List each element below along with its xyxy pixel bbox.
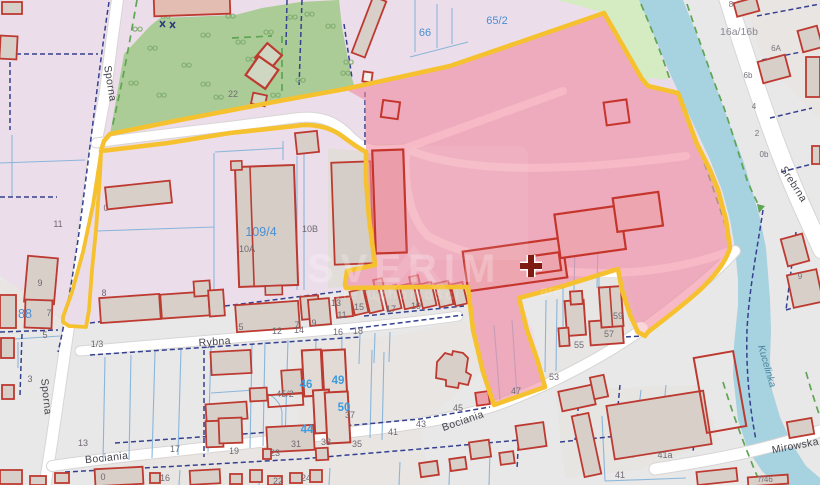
svg-text:6A: 6A	[771, 44, 781, 53]
svg-text:57: 57	[604, 329, 614, 339]
svg-text:31: 31	[291, 439, 301, 449]
svg-text:Nieruchomości: Nieruchomości	[330, 286, 462, 302]
svg-text:16: 16	[333, 327, 343, 337]
svg-text:are: are	[540, 283, 562, 300]
svg-text:33: 33	[321, 437, 331, 447]
svg-text:0: 0	[100, 472, 105, 482]
svg-text:88: 88	[18, 307, 32, 321]
svg-text:18: 18	[353, 326, 363, 336]
svg-text:9: 9	[311, 318, 316, 328]
svg-text:0b: 0b	[760, 150, 769, 159]
svg-text:0: 0	[103, 203, 108, 213]
svg-text:7/46: 7/46	[757, 475, 773, 484]
svg-text:45/2: 45/2	[276, 389, 294, 399]
svg-text:45: 45	[453, 403, 463, 413]
svg-text:55: 55	[574, 340, 584, 350]
svg-text:17: 17	[170, 444, 180, 454]
svg-text:11: 11	[53, 219, 62, 229]
svg-text:7: 7	[46, 308, 51, 318]
svg-text:4: 4	[752, 102, 757, 111]
svg-text:41: 41	[388, 427, 398, 437]
svg-text:9: 9	[798, 272, 803, 281]
svg-text:37: 37	[345, 410, 355, 420]
svg-text:19: 19	[411, 301, 421, 311]
svg-text:1/3: 1/3	[91, 339, 104, 349]
svg-text:2: 2	[755, 129, 760, 138]
svg-text:16a/16b: 16a/16b	[720, 26, 758, 38]
svg-text:8: 8	[729, 0, 734, 9]
svg-text:66: 66	[419, 27, 431, 39]
svg-text:47: 47	[511, 386, 521, 396]
svg-text:5: 5	[238, 322, 243, 332]
svg-text:35: 35	[352, 439, 362, 449]
svg-text:53: 53	[549, 372, 559, 382]
svg-text:24: 24	[301, 473, 311, 483]
svg-text:23: 23	[270, 448, 280, 458]
svg-text:59: 59	[613, 311, 623, 321]
svg-text:44: 44	[301, 424, 314, 436]
svg-text:109/4: 109/4	[245, 225, 276, 239]
svg-text:8: 8	[101, 288, 106, 298]
svg-text:14: 14	[294, 325, 304, 335]
svg-text:10B: 10B	[302, 224, 318, 234]
svg-text:65/2: 65/2	[486, 15, 507, 27]
svg-text:22: 22	[273, 476, 283, 485]
svg-text:SVERIM: SVERIM	[307, 247, 502, 291]
svg-text:49: 49	[332, 375, 345, 387]
svg-text:10A: 10A	[239, 244, 255, 254]
svg-text:22: 22	[228, 89, 238, 99]
svg-text:19: 19	[229, 446, 239, 456]
svg-text:41a: 41a	[657, 450, 672, 460]
svg-text:43: 43	[416, 419, 426, 429]
svg-text:15: 15	[354, 302, 364, 312]
svg-text:Rybna: Rybna	[198, 335, 231, 349]
svg-text:12: 12	[272, 326, 282, 336]
svg-text:13: 13	[78, 438, 88, 448]
svg-text:41: 41	[615, 470, 625, 480]
svg-text:46: 46	[300, 379, 313, 391]
svg-text:6b: 6b	[744, 71, 753, 80]
svg-text:5: 5	[42, 330, 47, 340]
svg-text:9: 9	[37, 278, 42, 288]
svg-text:17: 17	[386, 304, 396, 314]
svg-text:11: 11	[337, 310, 346, 320]
svg-text:16: 16	[160, 473, 170, 483]
svg-text:3: 3	[27, 374, 32, 384]
